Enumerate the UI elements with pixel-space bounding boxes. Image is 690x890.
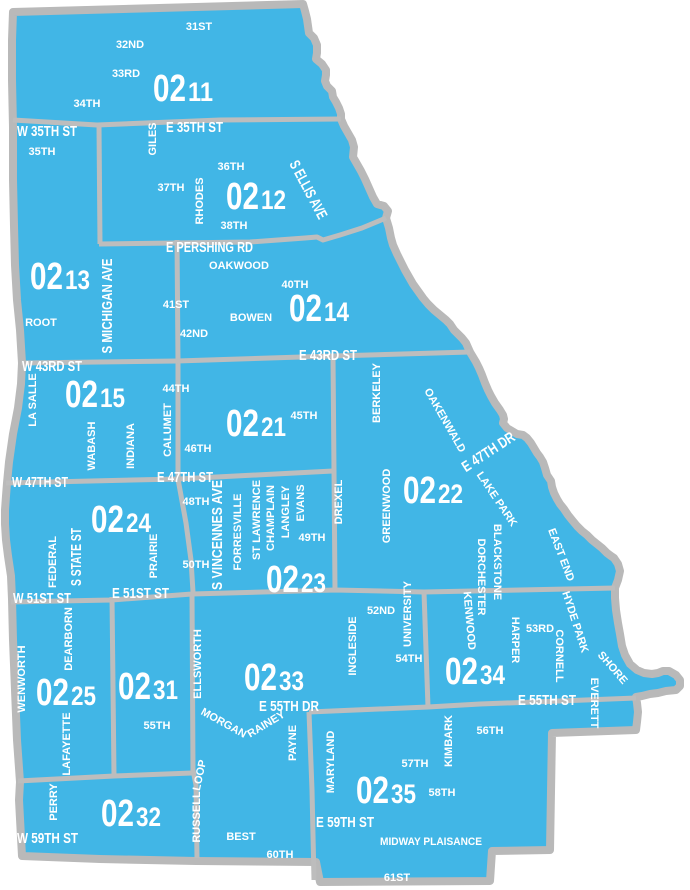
svg-text:41ST: 41ST	[163, 299, 190, 311]
svg-text:35TH: 35TH	[29, 146, 56, 158]
svg-text:RHODES: RHODES	[194, 177, 206, 224]
svg-text:02: 02	[91, 499, 124, 541]
svg-text:46TH: 46TH	[185, 443, 212, 455]
svg-text:RUSSELL: RUSSELL	[191, 791, 203, 843]
svg-text:E 55TH ST: E 55TH ST	[518, 692, 576, 709]
svg-text:02: 02	[226, 403, 259, 445]
svg-text:W 51ST ST: W 51ST ST	[13, 590, 71, 607]
svg-text:50TH: 50TH	[183, 559, 210, 571]
svg-text:GILES: GILES	[147, 122, 159, 155]
svg-text:12: 12	[261, 185, 286, 215]
svg-text:40TH: 40TH	[282, 279, 309, 291]
svg-text:31ST: 31ST	[186, 21, 213, 33]
svg-text:33RD: 33RD	[112, 68, 140, 80]
svg-text:E 43RD ST: E 43RD ST	[299, 347, 357, 364]
svg-text:42ND: 42ND	[180, 328, 208, 340]
svg-text:WABASH: WABASH	[86, 422, 98, 471]
svg-text:52ND: 52ND	[367, 605, 395, 617]
svg-text:21: 21	[261, 412, 286, 442]
svg-text:PRAIRIE: PRAIRIE	[148, 534, 160, 579]
svg-text:W 59TH ST: W 59TH ST	[17, 830, 78, 847]
svg-text:23: 23	[301, 568, 326, 598]
svg-text:49TH: 49TH	[299, 532, 326, 544]
svg-text:02: 02	[65, 374, 98, 416]
svg-text:E 55TH DR: E 55TH DR	[259, 698, 319, 715]
svg-text:54TH: 54TH	[396, 653, 423, 665]
svg-text:E PERSHING RD: E PERSHING RD	[166, 239, 253, 256]
svg-text:CORNELL: CORNELL	[553, 629, 565, 682]
svg-text:PERRY: PERRY	[48, 783, 60, 821]
svg-text:56TH: 56TH	[477, 725, 504, 737]
svg-text:S MICHIGAN AVE: S MICHIGAN AVE	[99, 259, 116, 354]
svg-text:38TH: 38TH	[221, 220, 248, 232]
svg-text:WENWORTH: WENWORTH	[16, 645, 28, 712]
svg-text:60TH: 60TH	[267, 849, 294, 861]
svg-text:02: 02	[101, 793, 134, 835]
svg-text:33: 33	[279, 666, 304, 696]
svg-text:GREENWOOD: GREENWOOD	[381, 469, 393, 544]
svg-text:CHAMPLAIN: CHAMPLAIN	[265, 485, 277, 551]
svg-text:BEST: BEST	[226, 831, 256, 843]
svg-text:W 35TH ST: W 35TH ST	[17, 123, 77, 140]
svg-text:02: 02	[118, 666, 151, 708]
svg-text:02: 02	[445, 651, 478, 693]
svg-text:02: 02	[244, 657, 277, 699]
svg-text:PAYNE: PAYNE	[287, 725, 299, 761]
svg-text:S STATE ST: S STATE ST	[68, 528, 85, 586]
svg-text:02: 02	[289, 288, 322, 330]
svg-text:11: 11	[188, 77, 213, 107]
svg-text:FEDERAL: FEDERAL	[47, 536, 59, 588]
svg-text:E 51ST ST: E 51ST ST	[112, 585, 169, 602]
svg-text:15: 15	[100, 383, 125, 413]
svg-text:W 43RD ST: W 43RD ST	[22, 358, 82, 375]
svg-text:48TH: 48TH	[183, 496, 210, 508]
svg-text:25: 25	[71, 681, 96, 711]
svg-text:EVERETT: EVERETT	[588, 678, 600, 729]
svg-text:22: 22	[438, 479, 463, 509]
svg-text:ELLSWORTH: ELLSWORTH	[192, 629, 204, 699]
svg-text:HARPER: HARPER	[509, 617, 521, 664]
svg-text:24: 24	[126, 508, 151, 538]
svg-text:LAFAYETTE: LAFAYETTE	[61, 712, 73, 775]
svg-text:32: 32	[136, 802, 161, 832]
svg-text:KIMBARK: KIMBARK	[443, 715, 455, 767]
svg-text:61ST: 61ST	[384, 872, 411, 884]
svg-text:31: 31	[153, 675, 178, 705]
svg-text:55TH: 55TH	[144, 720, 171, 732]
svg-text:E 47TH ST: E 47TH ST	[157, 469, 213, 486]
svg-text:53RD: 53RD	[526, 623, 554, 635]
svg-text:INGLESIDE: INGLESIDE	[347, 616, 359, 675]
svg-text:02: 02	[226, 176, 259, 218]
svg-text:W 47TH ST: W 47TH ST	[12, 474, 68, 491]
svg-text:37TH: 37TH	[158, 182, 185, 194]
svg-text:35: 35	[391, 779, 416, 809]
svg-text:MIDWAY PLAISANCE: MIDWAY PLAISANCE	[380, 836, 482, 848]
svg-text:02: 02	[36, 672, 69, 714]
svg-text:LA SALLE: LA SALLE	[27, 373, 39, 426]
svg-text:14: 14	[324, 297, 349, 327]
svg-text:32ND: 32ND	[116, 39, 144, 51]
svg-text:ST LAWRENCE: ST LAWRENCE	[251, 480, 263, 560]
svg-text:INDIANA: INDIANA	[125, 423, 137, 469]
svg-text:02: 02	[266, 559, 299, 601]
svg-text:FORRESVILLE: FORRESVILLE	[232, 493, 244, 570]
svg-text:MARYLAND: MARYLAND	[325, 731, 337, 794]
svg-text:45TH: 45TH	[291, 410, 318, 422]
svg-text:DORCHESTER: DORCHESTER	[475, 538, 487, 615]
svg-text:ROOT: ROOT	[25, 317, 57, 329]
svg-text:BOWEN: BOWEN	[230, 312, 272, 324]
svg-text:02: 02	[403, 470, 436, 512]
svg-text:02: 02	[356, 770, 389, 812]
svg-text:CALUMET: CALUMET	[162, 403, 174, 457]
svg-text:E 35TH ST: E 35TH ST	[166, 119, 223, 136]
svg-text:02: 02	[153, 68, 186, 110]
svg-text:BLACKSTONE: BLACKSTONE	[491, 524, 503, 600]
svg-text:E 59TH ST: E 59TH ST	[316, 814, 374, 831]
svg-text:S VINCENNES AVE: S VINCENNES AVE	[209, 480, 226, 590]
svg-text:58TH: 58TH	[429, 787, 456, 799]
svg-text:DEARBORN: DEARBORN	[63, 607, 75, 671]
svg-text:DREXEL: DREXEL	[333, 479, 345, 524]
svg-text:44TH: 44TH	[163, 383, 190, 395]
svg-text:BERKELEY: BERKELEY	[371, 362, 383, 423]
svg-text:57TH: 57TH	[402, 758, 429, 770]
svg-text:36TH: 36TH	[218, 161, 245, 173]
svg-text:EVANS: EVANS	[295, 484, 307, 521]
svg-text:02: 02	[30, 256, 63, 298]
svg-text:LANGLEY: LANGLEY	[280, 485, 292, 538]
svg-text:34: 34	[480, 660, 505, 690]
svg-text:34TH: 34TH	[74, 98, 101, 110]
svg-text:OAKWOOD: OAKWOOD	[209, 260, 269, 272]
svg-text:13: 13	[65, 265, 90, 295]
svg-text:UNIVERSITY: UNIVERSITY	[402, 580, 414, 647]
